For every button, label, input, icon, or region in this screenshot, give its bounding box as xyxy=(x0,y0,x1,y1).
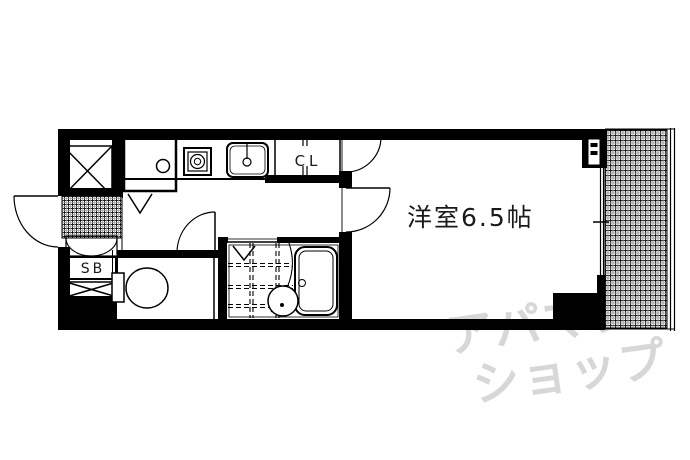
shoe-box-doors xyxy=(66,236,117,256)
bath-door-fold-mark xyxy=(233,246,255,260)
room-label: 洋室6.5帖 xyxy=(407,203,534,232)
wall-left-lower xyxy=(58,247,70,296)
toilet-room xyxy=(112,250,214,330)
washer-faucet-icon xyxy=(157,160,170,173)
shoe-box-label: SB xyxy=(81,261,106,277)
wall-inner-column xyxy=(112,129,123,198)
bathtub-icon xyxy=(295,247,337,315)
wall-room-left-a xyxy=(339,171,352,188)
stove-burner-icon xyxy=(184,148,211,175)
room-entry-door xyxy=(342,188,390,232)
small-window xyxy=(588,139,600,165)
toilet-icon xyxy=(112,268,168,308)
closet-door-arc xyxy=(342,137,381,172)
wall-bottomright-step xyxy=(553,275,605,330)
kitchen-sink-icon xyxy=(227,143,268,177)
closet-label: CL xyxy=(295,152,322,170)
floor-plan-svg: アパマン ショップ xyxy=(0,0,690,460)
balcony-hatch xyxy=(605,130,667,328)
kitchen xyxy=(123,143,277,179)
floorplan-page: アパマン ショップ xyxy=(0,0,690,460)
washing-machine-space xyxy=(124,138,176,213)
pipe-space-box xyxy=(66,282,117,297)
wash-basin-icon xyxy=(268,286,298,316)
entrance-floor-hatch xyxy=(62,196,122,238)
entrance-door xyxy=(14,196,58,247)
bathroom xyxy=(226,239,341,320)
toilet-door xyxy=(177,212,215,253)
wall-toilet-top xyxy=(117,250,218,258)
balcony xyxy=(605,128,675,331)
wall-left-upper xyxy=(58,129,70,196)
washer-door-fold-mark xyxy=(128,194,152,213)
